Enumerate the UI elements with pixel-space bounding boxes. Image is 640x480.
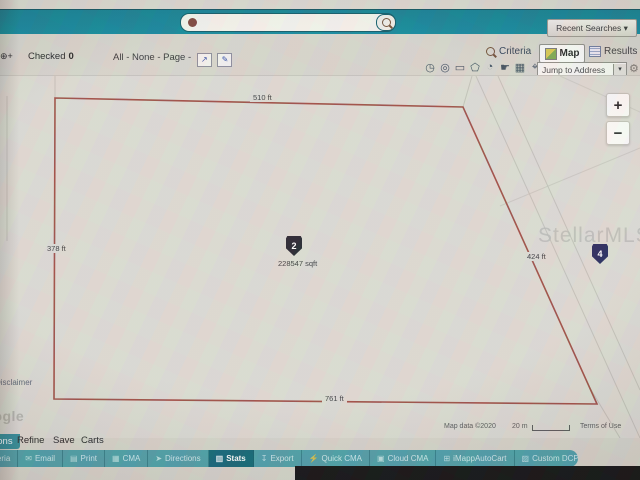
parcel-area-label: 228547 sqft [278,259,317,268]
screen: Recent Searches ▾ ⊕+ Checked0 All - None… [0,0,640,480]
checked-label: Checked [28,51,66,62]
quick-cma-icon: ⚡ [309,454,319,463]
polygon-select-icon[interactable]: ⬠ [469,61,481,74]
zoom-in-button[interactable]: + [606,93,630,117]
results-icon [589,46,601,57]
window-split-icon[interactable]: ⊕+ [0,51,13,62]
email-icon: ✉ [25,454,32,463]
results-label: Results [604,46,637,57]
taskbar-label: Stats [226,454,246,463]
autocart-icon: ⊞ [443,454,450,463]
parcel-left-length: 378 ft [44,244,69,253]
print-icon: ▤ [70,454,78,463]
taskbar-label: Quick CMA [322,454,362,463]
checked-count-value: 0 [69,51,74,62]
rectangle-select-icon[interactable]: ▭ [454,61,466,74]
tab-refine[interactable]: Refine [17,435,44,446]
tab-carts[interactable]: Carts [81,435,104,446]
criteria-button[interactable]: Criteria [486,46,531,57]
map-draw-select-icon[interactable]: ✎ [217,53,232,67]
taskbar-button-stats[interactable]: ▥ Stats [209,450,254,467]
cma-icon: ▦ [112,454,120,463]
taskbar-label: Export [270,454,293,463]
search-icon [382,18,391,27]
history-icon[interactable]: ◷ [424,61,436,74]
jump-to-address-label: Jump to Address [538,65,613,75]
taskbar-button-export[interactable]: ↧ Export [254,450,302,467]
print-map-icon[interactable]: ▦ [514,61,526,74]
speed-search-icon [188,18,197,27]
gear-icon[interactable]: ⚙ [629,62,639,75]
taskbar-button-imapp-autocart[interactable]: ⊞ iMappAutoCart [436,450,514,467]
taskbar-button-email[interactable]: ✉ Email [18,450,63,467]
map-canvas[interactable]: 510 ft 378 ft 424 ft 761 ft StellarMLS 2… [0,75,640,438]
taskbar-label: Cloud CMA [388,454,429,463]
taskbar-button-cma[interactable]: ▦ CMA [105,450,148,467]
pointer-tool-icon[interactable]: ☛ [499,61,511,74]
photo-crop-strip [295,466,640,480]
actions-taskbar: ⌕ Criteria ✉ Email ▤ Print ▦ CMA ➤ Direc… [0,450,578,467]
map-tab-button[interactable]: Map [539,44,585,63]
taskbar-label: Directions [165,454,201,463]
parcel-boundary[interactable] [54,98,597,404]
taskbar-label: Print [81,454,97,463]
taskbar-label: Criteria [0,454,10,463]
globe-icon[interactable]: ◎ [439,61,451,74]
recent-searches-button[interactable]: Recent Searches ▾ [547,19,637,37]
taskbar-button-cloud-cma[interactable]: ▣ Cloud CMA [370,450,436,467]
terms-of-use-link[interactable]: Terms of Use [580,423,621,430]
parcel-bottom-length: 761 ft [322,394,347,403]
stellar-mls-watermark: StellarMLS [538,224,640,248]
stats-icon: ▥ [216,454,224,463]
checked-count: Checked0 [28,51,74,62]
speed-search-bar[interactable] [180,13,396,32]
criteria-label: Criteria [499,46,531,57]
map-scale-label: 20 m [512,423,528,430]
taskbar-label: Custom DCP Reports [532,454,578,463]
zoom-out-button[interactable]: − [606,121,630,145]
search-input[interactable] [197,16,395,29]
taskbar-button-directions[interactable]: ➤ Directions [148,450,208,467]
map-toolbar: ◷ ◎ ▭ ⬠ ◔ ☛ ▦ ⌖ [424,61,541,74]
custom-reports-icon: ▨ [522,454,530,463]
select-links[interactable]: All - None - Page - ↗ ✎ [113,52,232,67]
map-attribution: Map data ©2020 [444,423,496,430]
select-all-icon[interactable]: ↗ [197,53,212,67]
taskbar-label: iMappAutoCart [453,454,506,463]
taskbar-button-print[interactable]: ▤ Print [63,450,105,467]
parcel-right-length: 424 ft [524,252,549,261]
taskbar-label: CMA [123,454,141,463]
taskbar-button-criteria[interactable]: ⌕ Criteria [0,450,18,467]
top-bezel [0,0,640,9]
google-logo: Google [0,408,24,424]
tab-save[interactable]: Save [53,435,75,446]
export-icon: ↧ [261,454,268,463]
map-label: Map [560,48,580,59]
taskbar-button-custom-reports[interactable]: ▨ Custom DCP Reports [515,450,578,467]
map-scale-bar [532,425,570,431]
select-links-label[interactable]: All - None - Page - [113,52,191,63]
disclaimer-link[interactable]: Disclaimer [0,378,32,387]
cloud-cma-icon: ▣ [377,454,385,463]
taskbar-label: Email [35,454,55,463]
results-tab-button[interactable]: Results [589,46,637,57]
directions-icon: ➤ [155,454,162,463]
taskbar-button-quick-cma[interactable]: ⚡ Quick CMA [302,450,370,467]
criteria-search-icon [486,47,495,56]
map-icon [545,48,557,60]
search-button[interactable] [376,14,396,31]
radius-select-icon[interactable]: ◔ [484,61,496,74]
parcel-top-length: 510 ft [250,93,275,102]
